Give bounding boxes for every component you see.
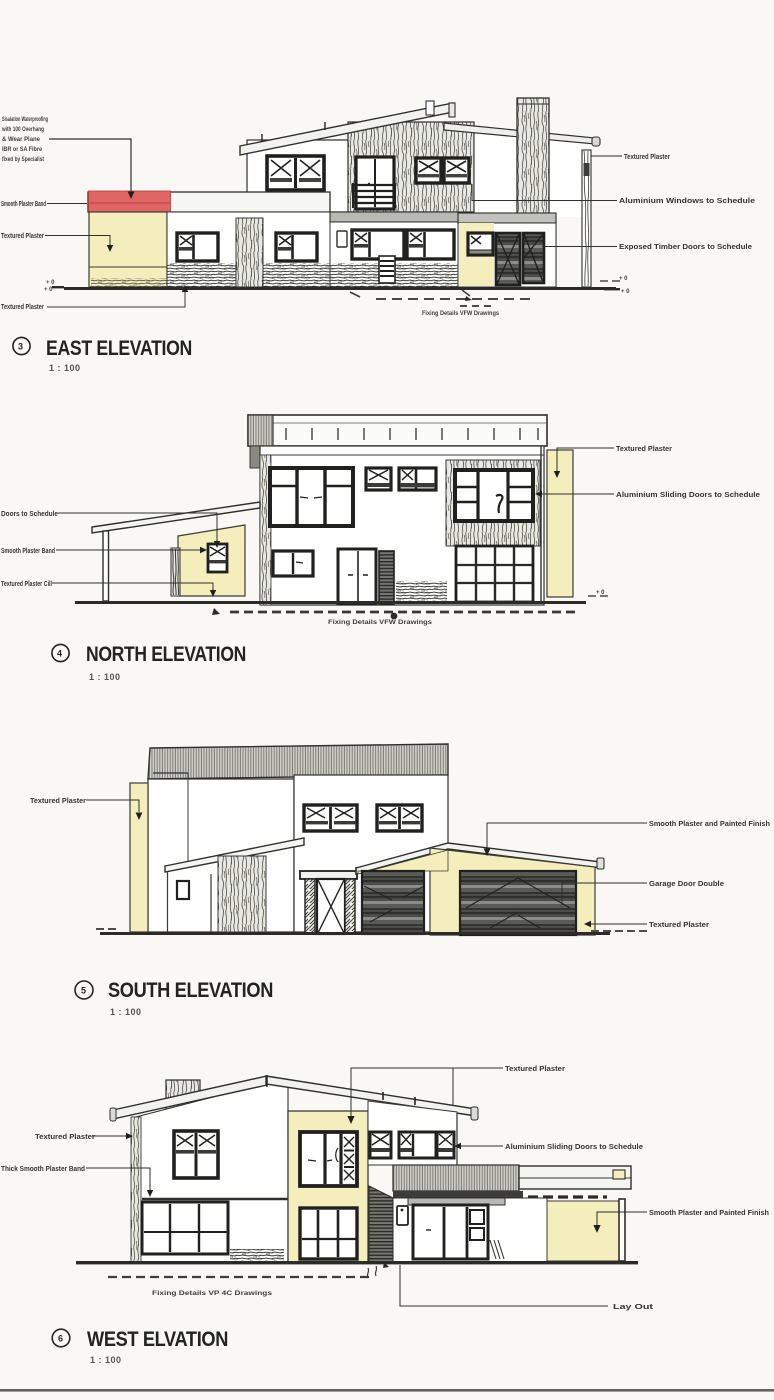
svg-text:IBR or SA Fibre: IBR or SA Fibre (2, 147, 43, 153)
svg-text:WEST ELVATION: WEST ELVATION (87, 1328, 228, 1351)
svg-text:Smooth Plaster Band: Smooth Plaster Band (1, 548, 55, 555)
svg-text:& Wear Plane: & Wear Plane (2, 137, 41, 143)
svg-text:Fixing Details VFW Drawings: Fixing Details VFW Drawings (422, 311, 500, 317)
svg-text:NORTH ELEVATION: NORTH ELEVATION (86, 643, 246, 666)
svg-text:Smooth Plaster and Painted Fin: Smooth Plaster and Painted Finish (649, 1210, 769, 1217)
svg-text:Aluminium Sliding Doors to Sch: Aluminium Sliding Doors to Schedule (505, 1144, 643, 1151)
svg-text:+ 0: + 0 (44, 287, 53, 293)
svg-text:Garage Door Double: Garage Door Double (649, 881, 724, 888)
svg-text:Doors to Schedule: Doors to Schedule (1, 511, 58, 518)
svg-text:Textured Plaster: Textured Plaster (616, 446, 672, 453)
svg-text:+ 0: + 0 (619, 276, 628, 282)
svg-text:EAST ELEVATION: EAST ELEVATION (46, 337, 192, 360)
svg-text:fixed by Specialist: fixed by Specialist (2, 157, 44, 163)
svg-text:Textured Plaster: Textured Plaster (649, 922, 709, 929)
svg-text:1 : 100: 1 : 100 (49, 363, 81, 373)
svg-text:Textured Plaster: Textured Plaster (1, 233, 44, 240)
svg-text:+ 0: + 0 (46, 280, 55, 286)
svg-text:Thick Smooth Plaster Band: Thick Smooth Plaster Band (1, 1166, 85, 1173)
svg-text:Textured Plaster: Textured Plaster (1, 304, 44, 311)
svg-text:SOUTH ELEVATION: SOUTH ELEVATION (108, 979, 273, 1002)
svg-text:Textured Plaster: Textured Plaster (624, 154, 670, 161)
svg-text:Sisalation Waterproofing: Sisalation Waterproofing (2, 117, 48, 123)
svg-text:Textured Plaster: Textured Plaster (35, 1134, 95, 1141)
svg-text:Smooth Plaster and Painted Fin: Smooth Plaster and Painted Finish (649, 821, 770, 828)
svg-text:Textured Plaster: Textured Plaster (30, 798, 86, 805)
svg-text:3: 3 (18, 342, 23, 352)
svg-text:with 100 Overhang: with 100 Overhang (1, 127, 44, 133)
svg-text:5: 5 (81, 986, 86, 996)
svg-text:1 : 100: 1 : 100 (110, 1007, 142, 1017)
svg-text:+ 0: + 0 (621, 289, 630, 295)
svg-text:1 : 100: 1 : 100 (89, 672, 121, 682)
svg-text:+ 0: + 0 (596, 590, 605, 596)
svg-text:Lay Out: Lay Out (613, 1304, 654, 1311)
svg-text:Aluminium Sliding Doors to Sch: Aluminium Sliding Doors to Schedule (616, 492, 760, 499)
svg-text:4: 4 (57, 649, 62, 659)
svg-text:Textured Plaster: Textured Plaster (505, 1066, 565, 1073)
svg-text:Fixing Details VP 4C Drawings: Fixing Details VP 4C Drawings (152, 1291, 273, 1297)
svg-text:Aluminium Windows to Schedule: Aluminium Windows to Schedule (619, 198, 755, 205)
svg-text:Exposed Timber Doors to Schedu: Exposed Timber Doors to Schedule (619, 244, 752, 251)
svg-text:Smooth Plaster Band: Smooth Plaster Band (1, 201, 46, 208)
svg-text:Textured Plaster Cill: Textured Plaster Cill (1, 581, 52, 588)
svg-text:Fixing Details VFW Drawings: Fixing Details VFW Drawings (328, 620, 433, 626)
svg-text:1 : 100: 1 : 100 (90, 1355, 122, 1365)
svg-text:6: 6 (58, 1334, 63, 1344)
